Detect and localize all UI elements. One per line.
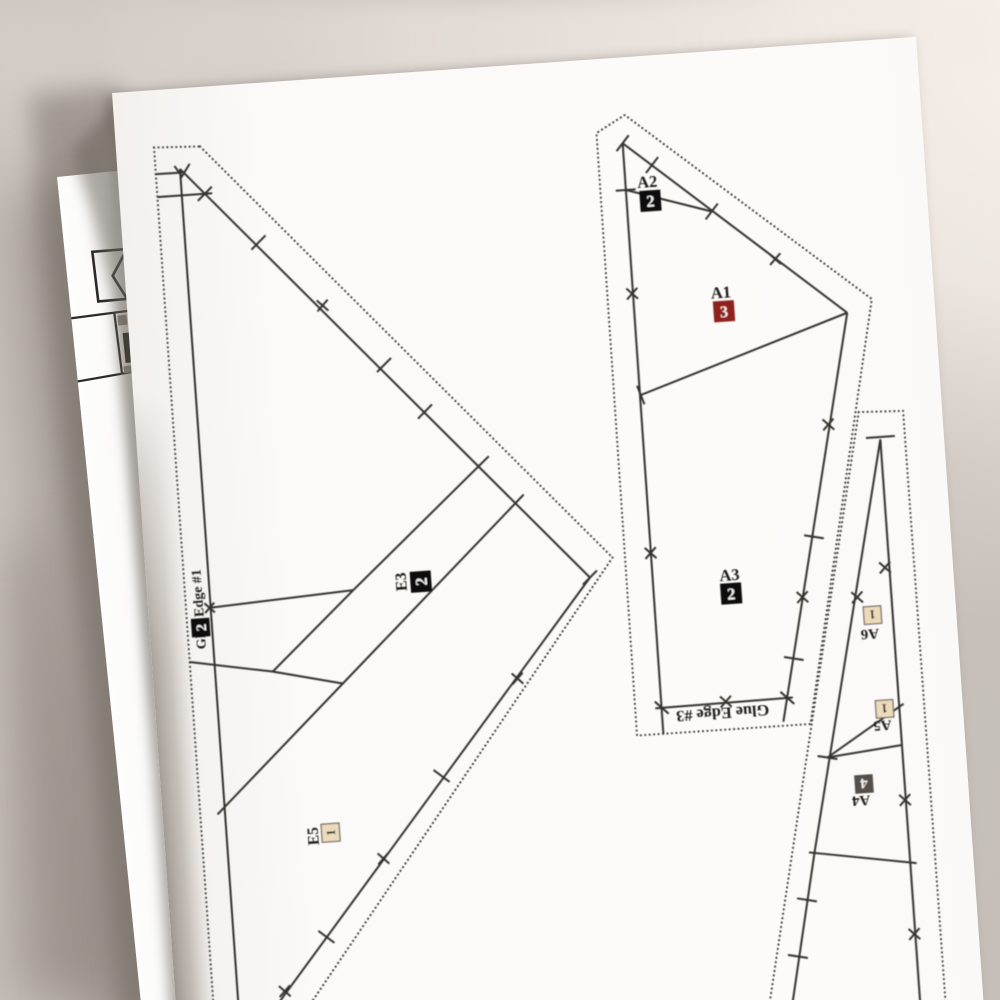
svg-text:E5: E5 (305, 826, 323, 845)
svg-text:2: 2 (726, 584, 736, 604)
svg-text:2: 2 (646, 191, 656, 211)
svg-text:1: 1 (881, 701, 889, 716)
svg-text:2: 2 (194, 623, 210, 632)
svg-text:1: 1 (869, 607, 877, 622)
svg-text:A2: A2 (636, 172, 657, 192)
svg-text:A6: A6 (860, 625, 880, 642)
svg-text:A4: A4 (851, 791, 871, 808)
svg-text:A3: A3 (719, 565, 740, 585)
svg-text:A1: A1 (710, 282, 731, 302)
svg-text:3: 3 (719, 302, 729, 322)
svg-text:1: 1 (323, 829, 338, 837)
svg-text:E3: E3 (393, 572, 411, 592)
svg-text:A5: A5 (873, 716, 892, 733)
svg-text:2: 2 (411, 577, 431, 587)
